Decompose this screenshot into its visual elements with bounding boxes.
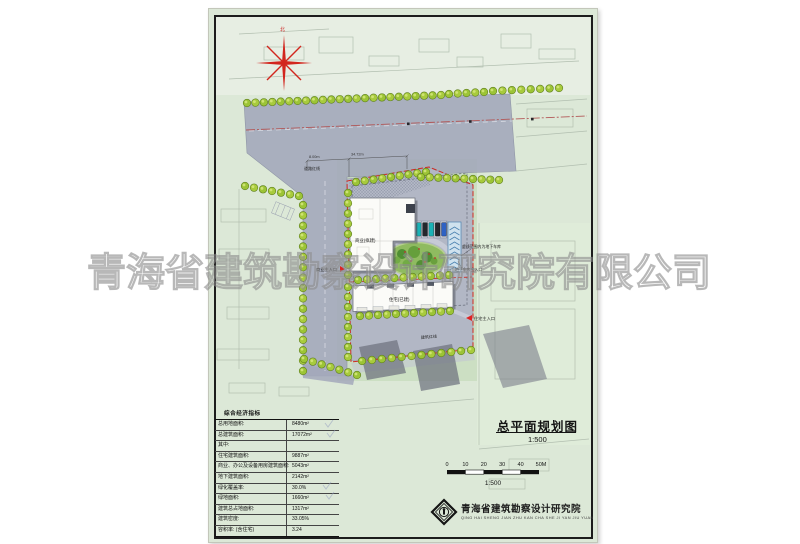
title-underline — [496, 432, 576, 433]
scale-tick-40: 40 — [518, 462, 524, 468]
scale-tick-10: 10 — [462, 462, 468, 468]
row-label: 建筑总占地面积: — [215, 505, 287, 515]
scale-tick-50: 50M — [536, 462, 547, 468]
table-row: 绿化覆盖率: 30.0% — [215, 484, 339, 495]
row-value: 2142m² — [287, 473, 339, 483]
scale-bar-segments — [447, 470, 539, 474]
economic-indicator-table: 综合经济指标 总用地面积: 8480m² 总建筑面积: 17072m² 其中: … — [215, 407, 339, 537]
table-row: 地下建筑面积: 2142m² — [215, 473, 339, 484]
table-row: 绿地面积: 1660m² — [215, 494, 339, 505]
row-value: 33.05% — [287, 515, 339, 525]
table-row: 容积率: (含住宅) 3.24 — [215, 526, 339, 536]
drawing-scale: 1:500 — [528, 435, 547, 444]
row-value: 5043m² — [287, 462, 339, 472]
table-row: 建筑总占地面积: 1317m² — [215, 505, 339, 516]
table-row: 其中: — [215, 441, 339, 452]
scale-tick-0: 0 — [445, 462, 448, 468]
table-row: 总建筑面积: 17072m² — [215, 431, 339, 442]
row-value — [287, 441, 339, 451]
row-value: 3.24 — [287, 526, 339, 536]
row-value: 9887m² — [287, 452, 339, 462]
scanned-drawing-page: 北 8.00m 34.72m 道路红线 商业(拟建) 住宅(已建) — [0, 0, 800, 544]
watermark-text: 青海省建筑勘察设计研究院有限公司 — [87, 242, 711, 298]
row-label: 绿地面积: — [215, 494, 287, 504]
table-row: 商业、办公及设备用房建筑面积: 5043m² — [215, 462, 339, 473]
table-rows: 总用地面积: 8480m² 总建筑面积: 17072m² 其中: 住宅建筑面积:… — [215, 419, 339, 537]
row-label: 绿化覆盖率: — [215, 484, 287, 494]
row-label: 住宅建筑面积: — [215, 452, 287, 462]
publisher-pinyin: QING HAI SHENG JIAN ZHU KAN CHA SHE JI Y… — [461, 515, 594, 520]
row-label: 其中: — [215, 441, 287, 451]
row-label: 总建筑面积: — [215, 431, 287, 441]
row-value: 1317m² — [287, 505, 339, 515]
row-value: 1660m² — [287, 494, 339, 504]
row-label: 地下建筑面积: — [215, 473, 287, 483]
row-label: 建筑密度: — [215, 515, 287, 525]
row-label: 总用地面积: — [215, 420, 287, 430]
publisher-name: 青海省建筑勘察设计研究院 — [461, 501, 581, 515]
table-title: 综合经济指标 — [215, 407, 339, 419]
institute-logo — [430, 498, 458, 526]
scale-bar: 0 10 20 30 40 50M 1:500 — [439, 457, 555, 491]
table-row: 总用地面积: 8480m² — [215, 420, 339, 431]
table-row: 住宅建筑面积: 9887m² — [215, 452, 339, 463]
row-value: 17072m² — [287, 431, 339, 441]
row-value: 30.0% — [287, 484, 339, 494]
scale-tick-30: 30 — [499, 462, 505, 468]
row-label: 容积率: (含住宅) — [215, 526, 287, 536]
table-row: 建筑密度: 33.05% — [215, 515, 339, 526]
row-value: 8480m² — [287, 420, 339, 430]
scale-tick-20: 20 — [481, 462, 487, 468]
scale-bar-ratio: 1:500 — [485, 480, 502, 487]
row-label: 商业、办公及设备用房建筑面积: — [215, 462, 287, 472]
